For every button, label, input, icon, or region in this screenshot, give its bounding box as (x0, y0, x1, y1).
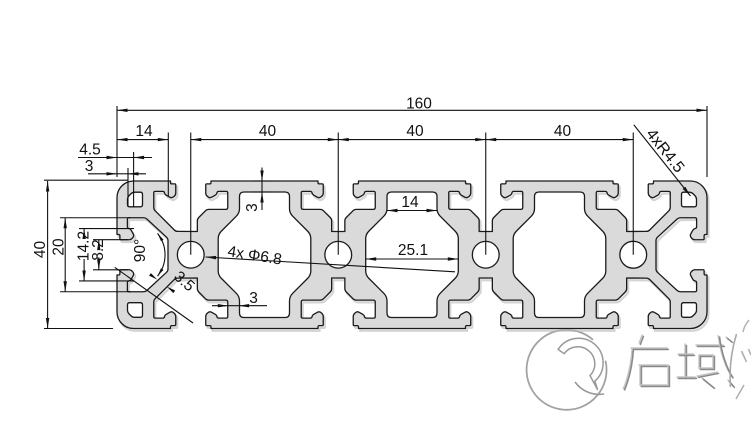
svg-text:40: 40 (554, 123, 572, 140)
svg-text:3: 3 (249, 290, 258, 307)
svg-text:3: 3 (85, 158, 94, 175)
svg-text:3: 3 (244, 203, 261, 212)
svg-text:20: 20 (50, 238, 67, 256)
svg-text:14: 14 (401, 194, 419, 211)
svg-text:40: 40 (406, 123, 424, 140)
svg-text:14: 14 (135, 123, 153, 140)
svg-text:4.5: 4.5 (79, 142, 101, 159)
svg-text:40: 40 (32, 241, 49, 259)
svg-text:25.1: 25.1 (398, 242, 428, 259)
svg-text:8.2: 8.2 (90, 239, 107, 261)
svg-text:160: 160 (406, 95, 432, 112)
svg-text:90°: 90° (132, 239, 149, 262)
svg-text:40: 40 (259, 123, 277, 140)
